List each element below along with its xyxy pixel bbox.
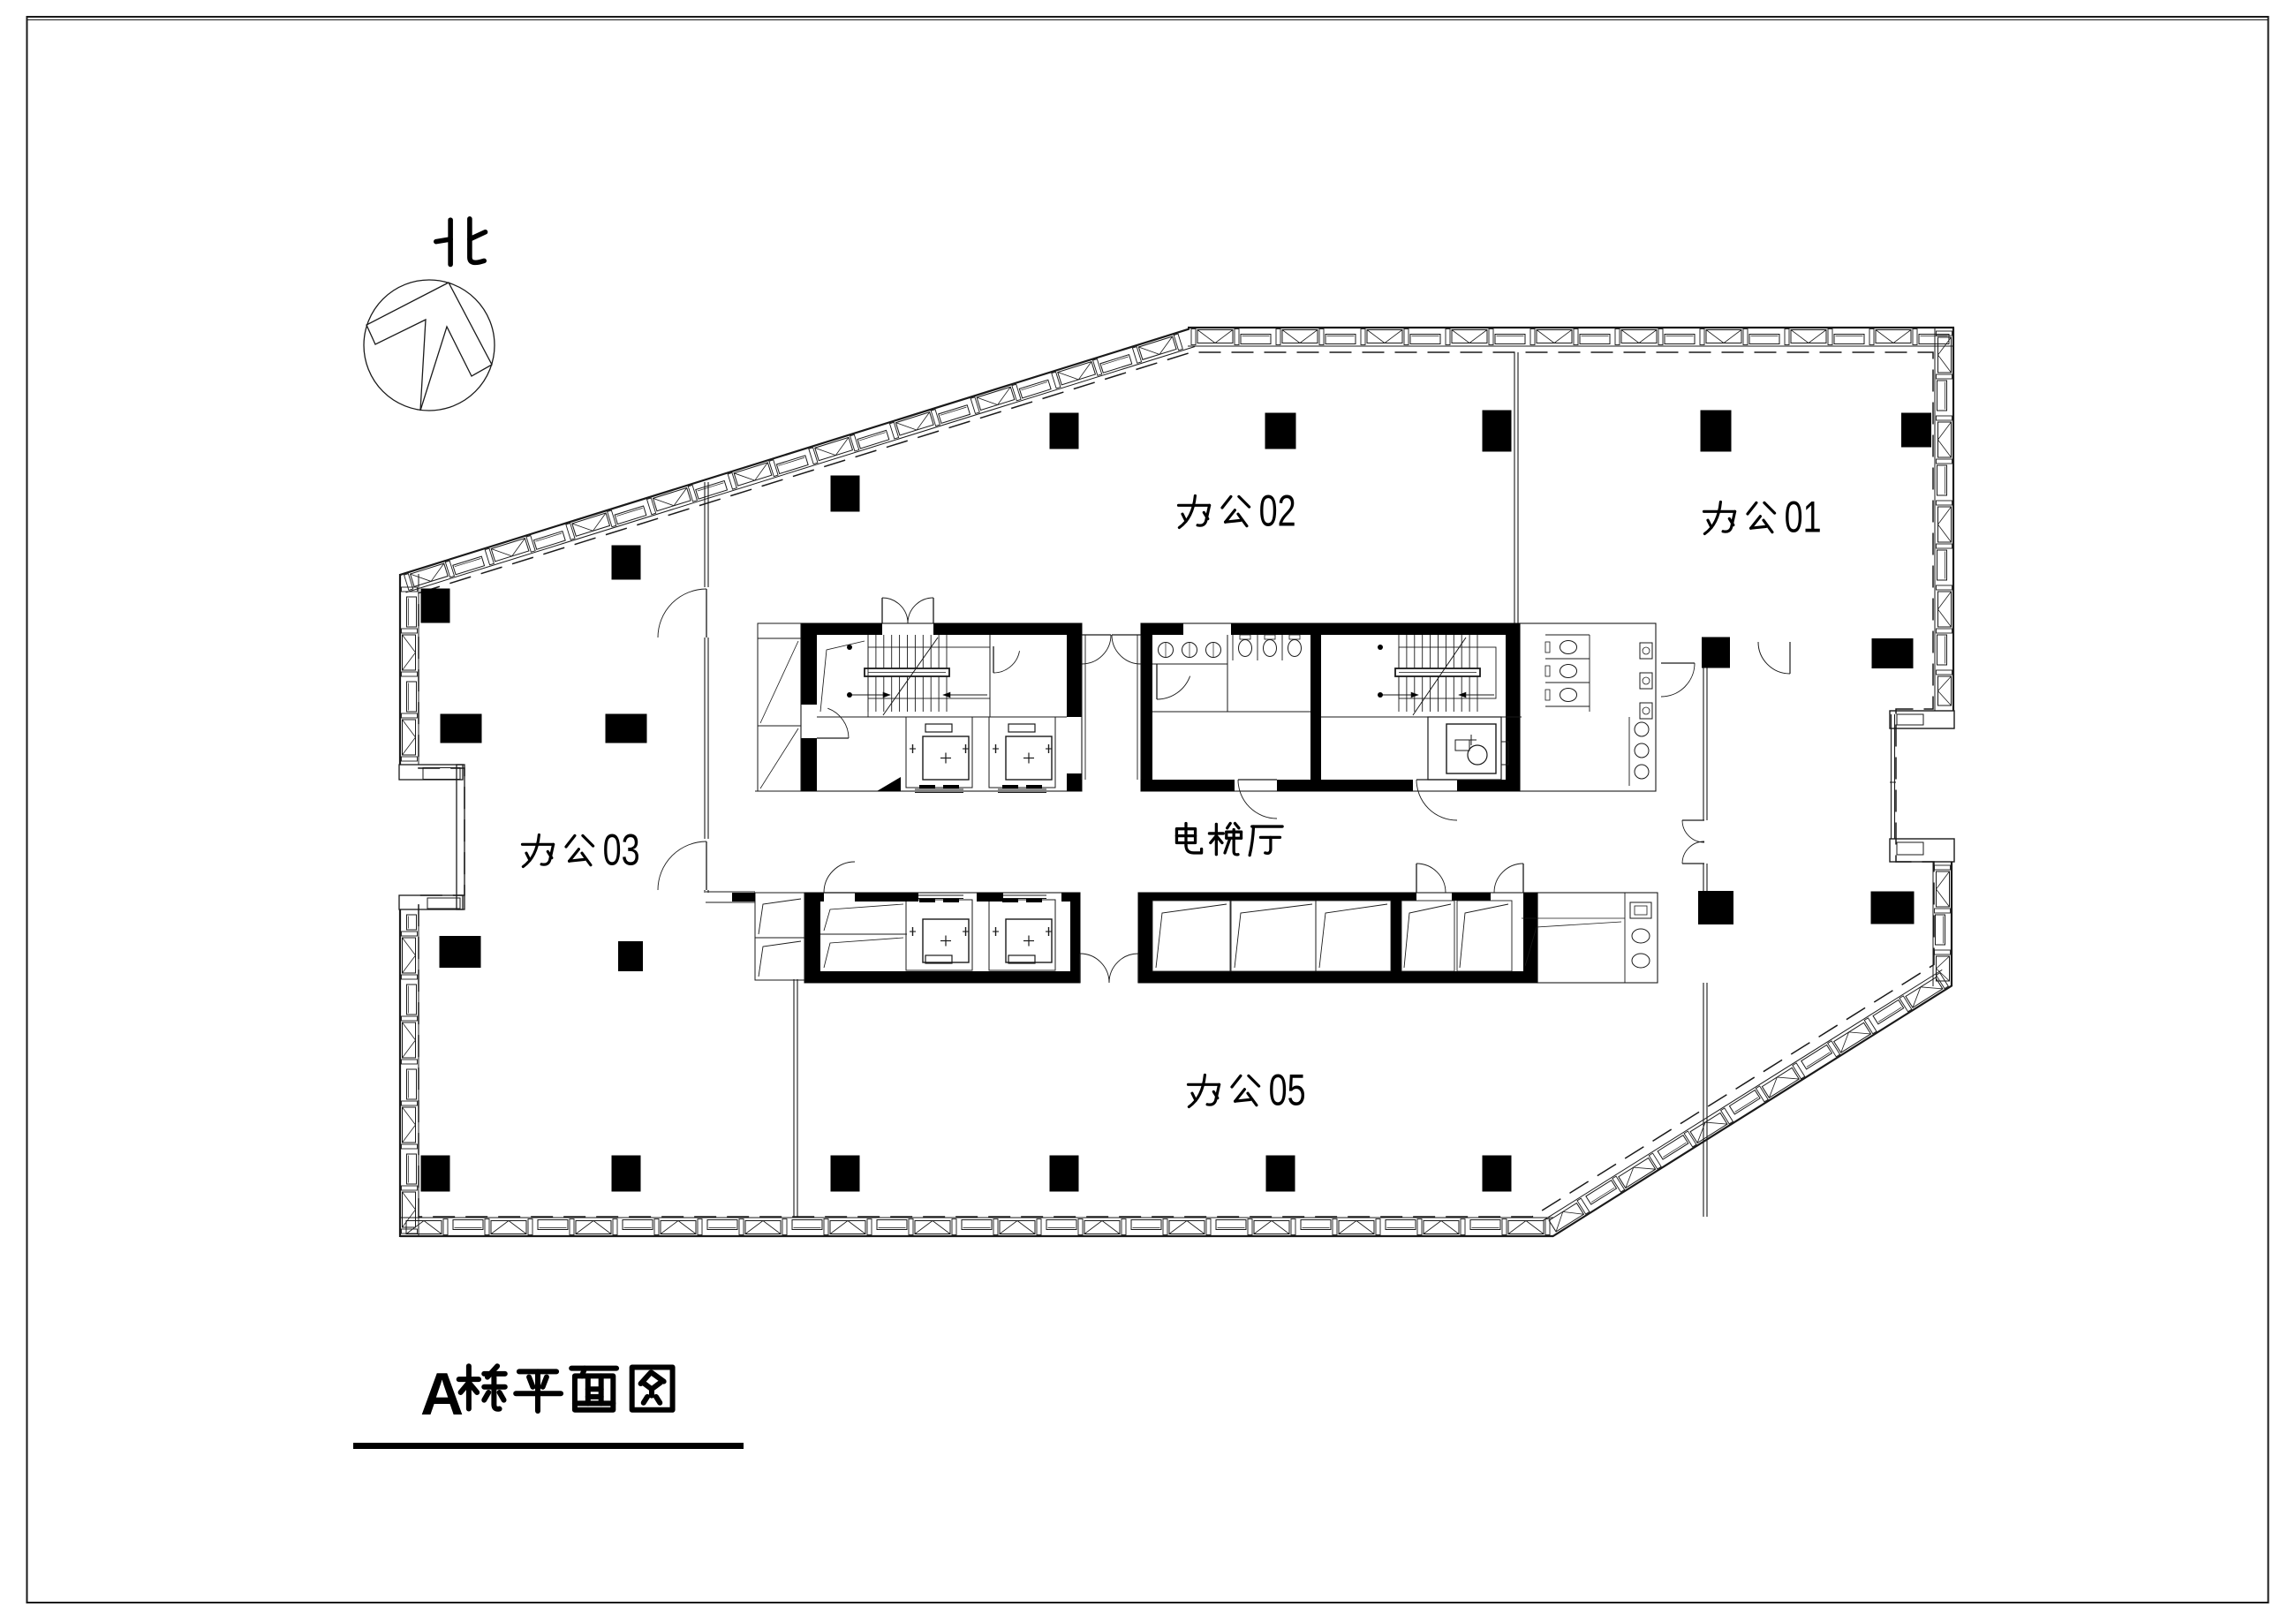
svg-text:01: 01 [1785, 493, 1822, 542]
svg-text:03: 03 [603, 826, 640, 875]
svg-text:02: 02 [1259, 487, 1296, 536]
svg-text:A: A [420, 1361, 464, 1428]
svg-text:05: 05 [1269, 1066, 1306, 1115]
